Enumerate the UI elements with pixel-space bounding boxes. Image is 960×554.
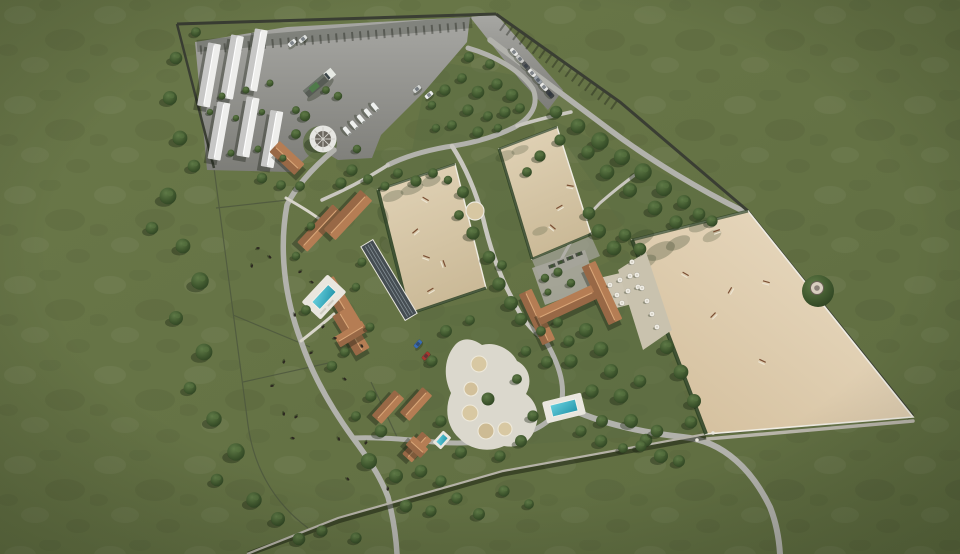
site-plan-render: Aerial 3D architectural rendering of a w… xyxy=(0,0,960,554)
masterplan-canvas xyxy=(0,0,960,554)
vignette xyxy=(0,0,960,554)
